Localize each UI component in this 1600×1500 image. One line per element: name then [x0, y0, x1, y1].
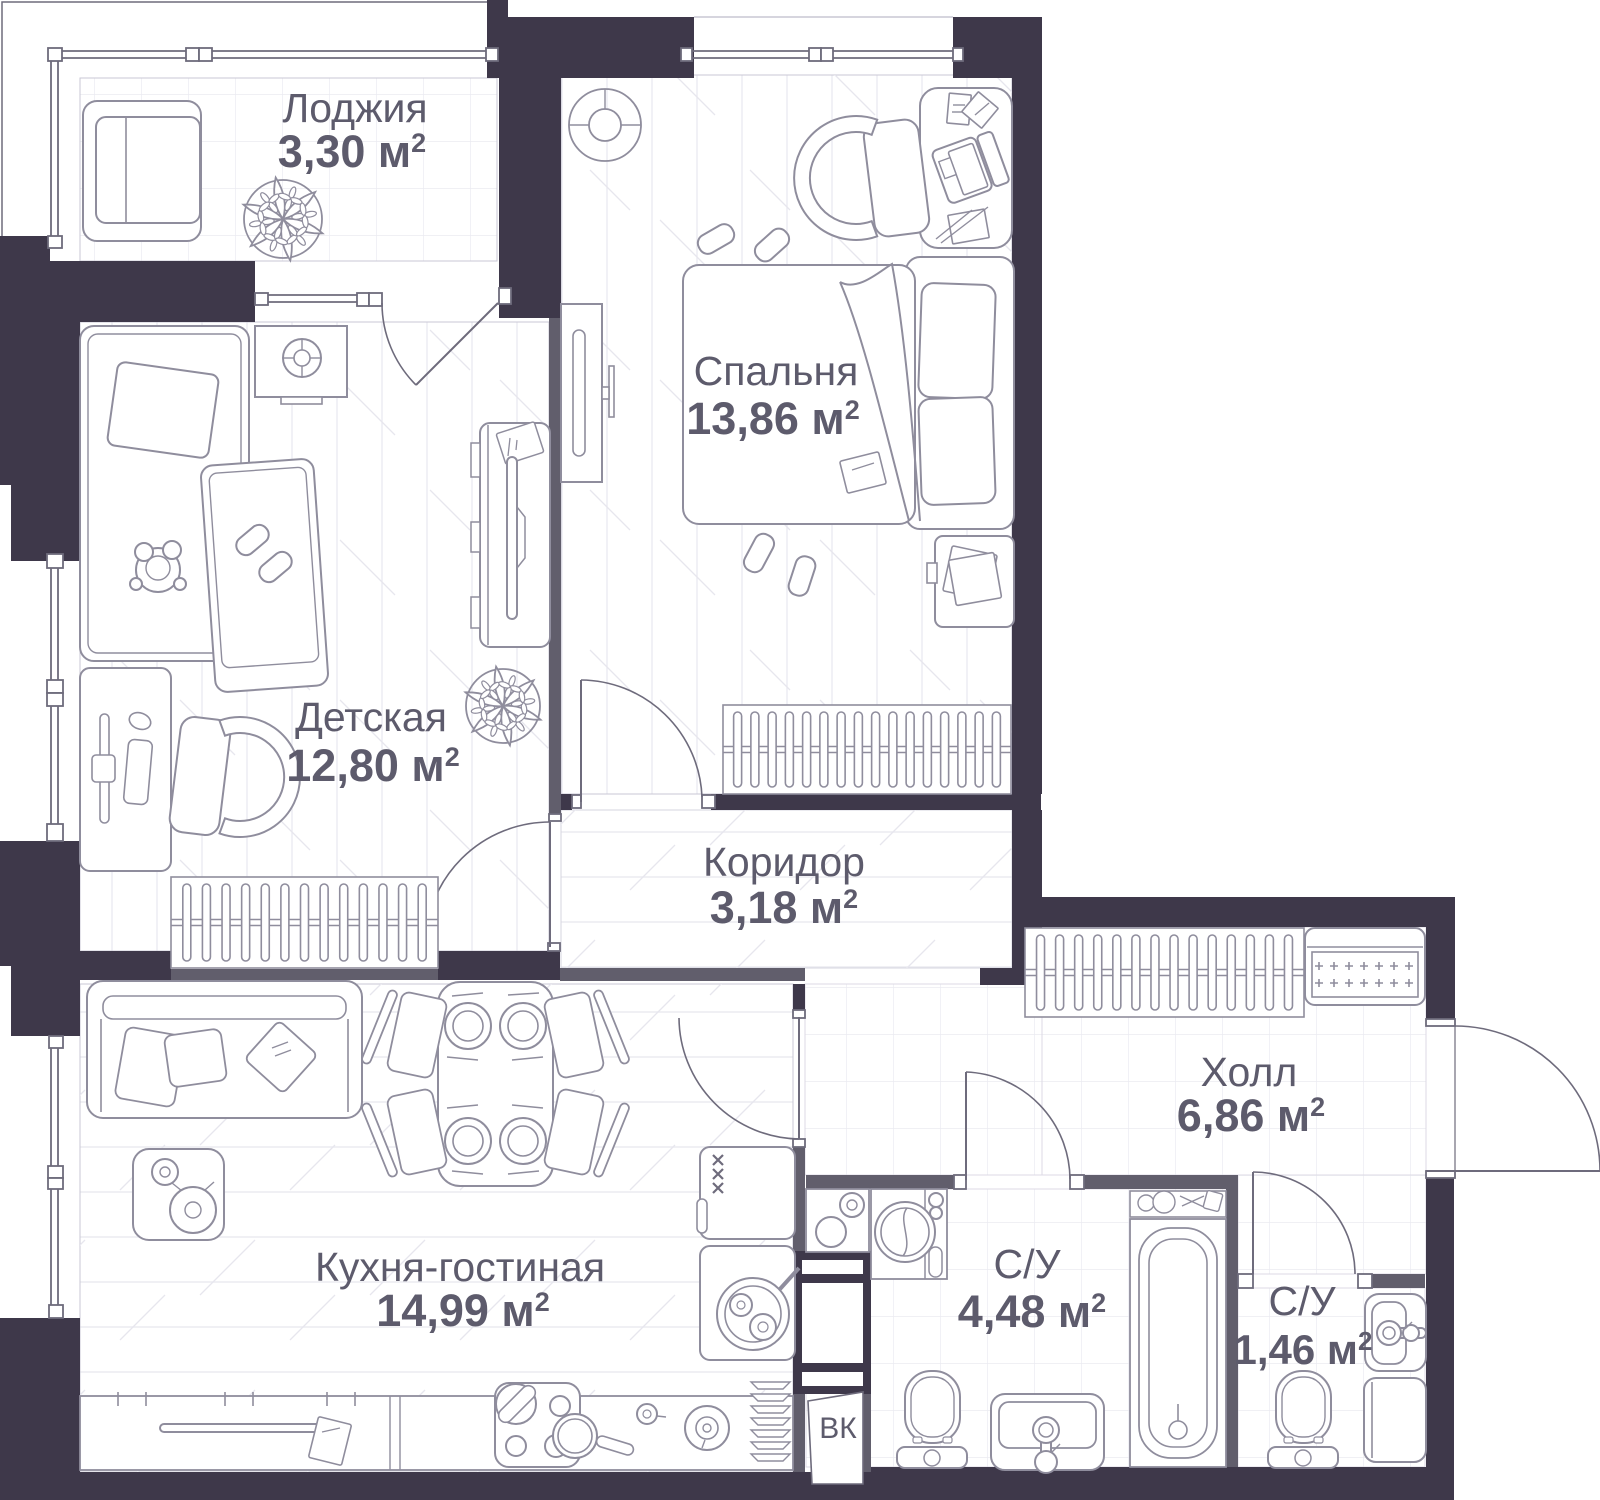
svg-text:1,46 м2: 1,46 м2	[1234, 1326, 1373, 1373]
svg-text:3,18 м2: 3,18 м2	[710, 882, 858, 933]
svg-text:4,48 м2: 4,48 м2	[958, 1286, 1106, 1337]
svg-text:3,30 м2: 3,30 м2	[278, 126, 426, 177]
svg-text:12,80 м2: 12,80 м2	[286, 740, 459, 791]
svg-text:С/У: С/У	[993, 1241, 1061, 1287]
svg-text:14,99 м2: 14,99 м2	[376, 1285, 549, 1336]
svg-text:ВК: ВК	[819, 1412, 857, 1445]
svg-text:6,86 м2: 6,86 м2	[1177, 1090, 1325, 1141]
svg-text:Коридор: Коридор	[703, 839, 865, 885]
svg-text:Холл: Холл	[1201, 1049, 1298, 1095]
svg-text:Лоджия: Лоджия	[282, 85, 427, 131]
svg-text:13,86 м2: 13,86 м2	[686, 393, 859, 444]
svg-text:Детская: Детская	[295, 694, 447, 740]
svg-text:С/У: С/У	[1268, 1278, 1336, 1324]
svg-text:Спальня: Спальня	[694, 348, 859, 394]
svg-text:Кухня-гостиная: Кухня-гостиная	[315, 1244, 605, 1290]
